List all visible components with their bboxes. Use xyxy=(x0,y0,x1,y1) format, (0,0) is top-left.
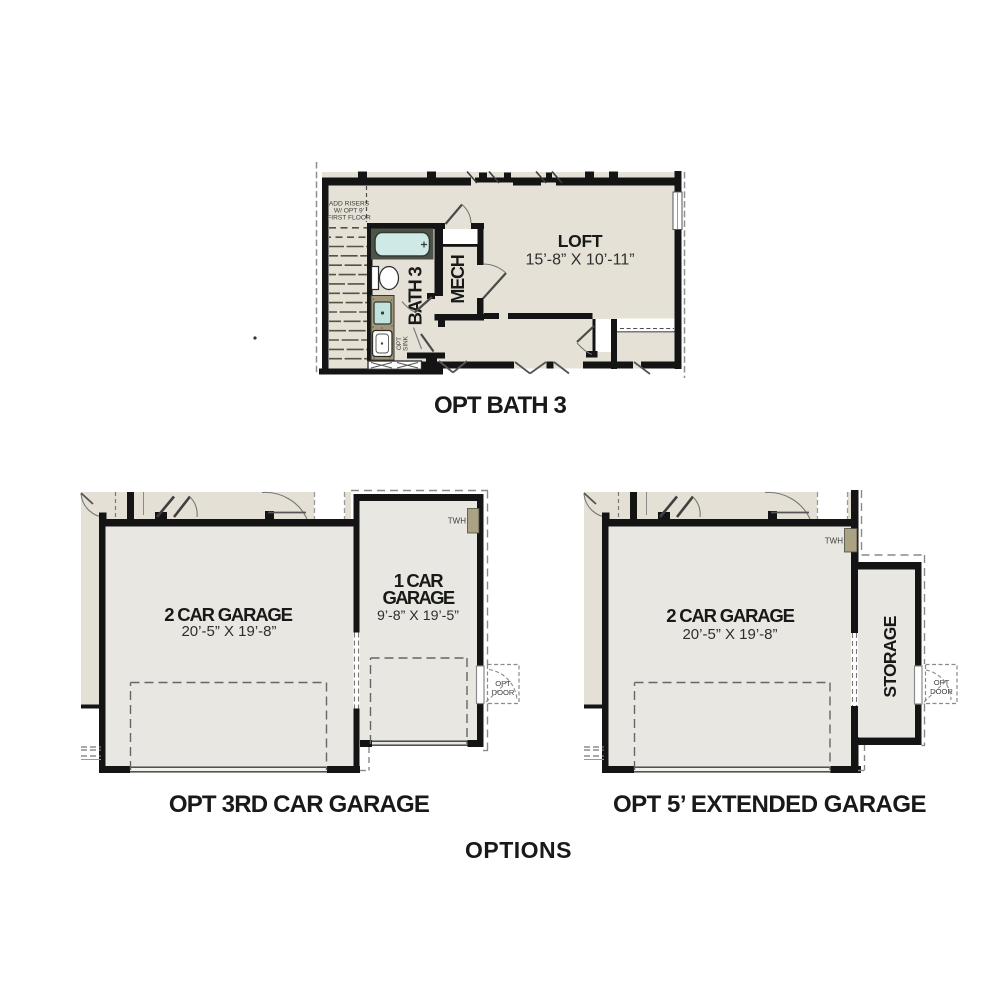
svg-text:OPTIONS: OPTIONS xyxy=(465,837,572,863)
svg-text:MECH: MECH xyxy=(448,255,468,303)
svg-text:OPT 3RD CAR GARAGE: OPT 3RD CAR GARAGE xyxy=(169,791,430,818)
svg-text:DOOR: DOOR xyxy=(492,688,515,697)
svg-text:GARAGE: GARAGE xyxy=(383,587,455,608)
svg-text:20’-5” X 19’-8”: 20’-5” X 19’-8” xyxy=(682,626,777,643)
svg-text:W/ OPT 9’: W/ OPT 9’ xyxy=(334,208,365,215)
svg-text:FIRST FLOOR: FIRST FLOOR xyxy=(327,215,371,222)
svg-text:OPT 5’ EXTENDED GARAGE: OPT 5’ EXTENDED GARAGE xyxy=(613,791,927,818)
svg-text:LOFT: LOFT xyxy=(558,231,603,251)
svg-text:2 CAR GARAGE: 2 CAR GARAGE xyxy=(164,604,292,625)
svg-text:15’-8” X 10’-11”: 15’-8” X 10’-11” xyxy=(525,252,634,269)
svg-text:OPT BATH 3: OPT BATH 3 xyxy=(434,392,566,419)
svg-text:TWH: TWH xyxy=(825,537,843,546)
svg-text:STORAGE: STORAGE xyxy=(880,616,900,697)
svg-text:TWH: TWH xyxy=(448,517,466,526)
svg-text:SINK: SINK xyxy=(403,335,410,350)
svg-text:9’-8” X 19’-5”: 9’-8” X 19’-5” xyxy=(377,608,459,624)
svg-text:2 CAR GARAGE: 2 CAR GARAGE xyxy=(666,605,794,626)
svg-text:ADD RISERS: ADD RISERS xyxy=(329,201,370,208)
svg-text:20’-5” X 19’-8”: 20’-5” X 19’-8” xyxy=(181,623,276,640)
svg-text:BATH 3: BATH 3 xyxy=(405,267,426,326)
